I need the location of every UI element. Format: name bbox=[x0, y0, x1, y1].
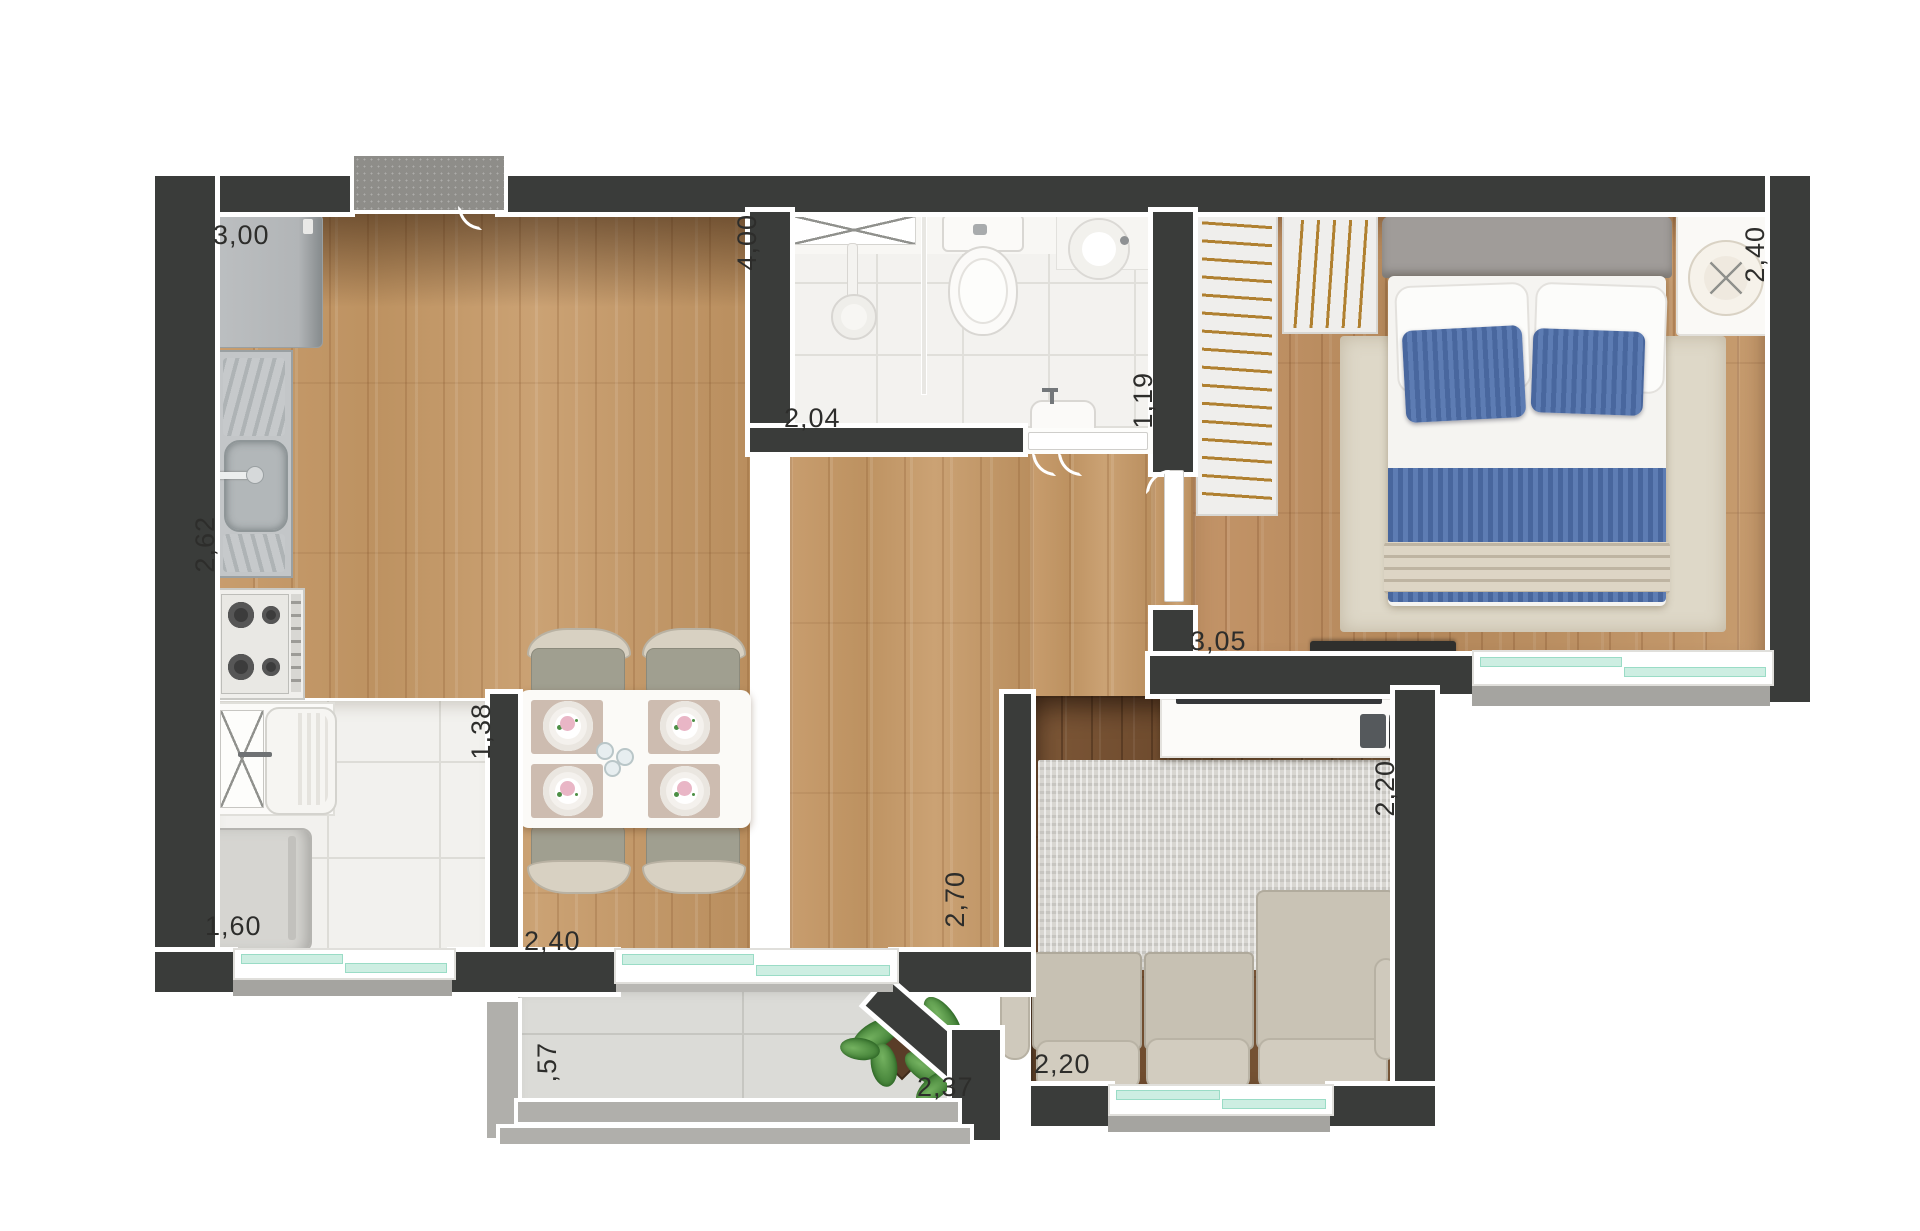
sink-drainboard-top bbox=[223, 358, 285, 436]
living-window-sill bbox=[1108, 1114, 1330, 1132]
wall-basin-faucet bbox=[1050, 390, 1054, 404]
sofa-seat-cushion-3 bbox=[1258, 1038, 1388, 1090]
bed-foot-blue bbox=[1388, 592, 1666, 602]
dim-kitchen-top: 3,00 bbox=[213, 220, 270, 251]
wall-top-main bbox=[500, 176, 1810, 212]
sofa-seat-cushion-2 bbox=[1146, 1038, 1250, 1090]
media-box bbox=[1360, 714, 1386, 748]
bathroom-door-leaf bbox=[1028, 432, 1148, 450]
dining-floor bbox=[790, 452, 1031, 952]
fridge-handle bbox=[303, 219, 313, 234]
laundry-window-glass-2 bbox=[345, 963, 447, 973]
flower-2 bbox=[677, 716, 692, 731]
glass-3 bbox=[604, 760, 621, 777]
dim-bedroom-width: 3,05 bbox=[1190, 626, 1247, 657]
laundry-tank-faucet bbox=[238, 752, 272, 757]
floor-plan: 3,00 4,00 2,04 1,19 2,40 2,62 3,05 1,38 … bbox=[0, 0, 1920, 1231]
washing-machine-panel bbox=[288, 836, 296, 940]
dim-laundry-width: 1,60 bbox=[205, 911, 262, 942]
wall-bottom-center bbox=[452, 952, 616, 992]
sofa-back-cushion-2 bbox=[1144, 952, 1254, 1050]
bedroom-window-sill bbox=[1472, 686, 1770, 706]
toilet-flush-button bbox=[973, 224, 987, 235]
shower-divider-glass bbox=[922, 214, 926, 394]
wall-bedroom-left-stub bbox=[1153, 610, 1193, 658]
bed-throw-beige bbox=[1384, 542, 1670, 594]
wall-living-left-divider bbox=[1004, 694, 1031, 952]
bedroom-window bbox=[1472, 650, 1774, 686]
glass-1 bbox=[596, 742, 614, 760]
laundry-window-glass-1 bbox=[241, 954, 343, 964]
balcony-left-parapet bbox=[487, 1002, 518, 1138]
laundry-tank-ribs bbox=[298, 713, 328, 805]
sink-drainboard-bottom bbox=[223, 534, 285, 572]
basin-faucet-dot bbox=[1120, 236, 1129, 245]
toilet-seat bbox=[958, 258, 1008, 324]
laundry-window-sill bbox=[233, 978, 452, 996]
laundry-counter-x bbox=[220, 710, 264, 808]
bedroom-tv bbox=[1310, 641, 1456, 657]
bed-headboard bbox=[1382, 216, 1672, 278]
wall-right-outer bbox=[1770, 176, 1810, 702]
stove-burner-4 bbox=[262, 658, 280, 676]
shower-glass-screen bbox=[792, 215, 916, 245]
balcony-bottom-parapet-outer bbox=[500, 1128, 970, 1144]
round-basin bbox=[1068, 218, 1130, 280]
dim-bedroom-nightstand: 2,40 bbox=[1740, 226, 1771, 283]
wall-basin-faucet-arm bbox=[1042, 388, 1058, 392]
stove-burner-3 bbox=[228, 654, 254, 680]
entry-doormat bbox=[350, 152, 508, 214]
wall-left-outer bbox=[155, 176, 215, 992]
stove-burner-1 bbox=[228, 602, 254, 628]
bed-accent-pillow-right bbox=[1531, 328, 1646, 416]
wall-living-right bbox=[1395, 690, 1435, 1126]
stove-controls bbox=[291, 594, 301, 692]
balcony-sliding-door bbox=[614, 948, 899, 984]
stove-burner-2 bbox=[262, 606, 280, 624]
dim-bathroom-width: 2,04 bbox=[784, 403, 841, 434]
shower-arm bbox=[847, 243, 858, 301]
dim-laundry-height: 1,38 bbox=[466, 703, 497, 760]
dim-living-height: 4,00 bbox=[732, 214, 763, 271]
flower-3 bbox=[560, 781, 575, 796]
bed-blanket-blue bbox=[1388, 468, 1666, 548]
sink-bowl bbox=[224, 440, 288, 532]
dim-bathroom-height: 1,19 bbox=[1128, 372, 1159, 429]
wall-bottom-right-of-slider bbox=[893, 952, 1031, 992]
dim-balcony-width: 2,37 bbox=[917, 1072, 974, 1103]
dining-chair-seat-1 bbox=[531, 648, 625, 696]
flower-1 bbox=[560, 716, 575, 731]
flower-4 bbox=[677, 781, 692, 796]
wardrobe-left-hangers bbox=[1202, 220, 1272, 510]
dim-dining-height: 2,70 bbox=[940, 871, 971, 928]
bed-accent-pillow-left bbox=[1402, 325, 1527, 423]
corridor-floor bbox=[1031, 452, 1153, 696]
dining-chair-seat-2 bbox=[646, 648, 740, 696]
sofa-back-cushion-1 bbox=[1032, 952, 1142, 1050]
laundry-window bbox=[233, 948, 456, 980]
dim-tv-wall-height: 2,20 bbox=[1370, 760, 1401, 817]
balcony-door-glass-2 bbox=[756, 965, 890, 976]
living-window-glass-2 bbox=[1222, 1099, 1326, 1109]
wall-living-bottom-right bbox=[1330, 1086, 1435, 1126]
dim-sofa-width: 2,20 bbox=[1034, 1049, 1091, 1080]
living-window-glass-1 bbox=[1116, 1090, 1220, 1100]
dim-balcony-height: ,57 bbox=[532, 1042, 563, 1083]
bedroom-window-glass-1 bbox=[1480, 657, 1622, 667]
wall-bedroom-bottom bbox=[1150, 656, 1472, 694]
balcony-bottom-parapet-inner bbox=[518, 1102, 958, 1122]
balcony-door-glass-1 bbox=[622, 954, 754, 965]
wall-living-bottom-left bbox=[1031, 1086, 1110, 1126]
wardrobe-top-hangers bbox=[1288, 220, 1372, 328]
dim-dining-width: 2,40 bbox=[524, 926, 581, 957]
living-room-window bbox=[1108, 1084, 1334, 1116]
sink-faucet-base bbox=[246, 466, 264, 484]
wall-bottom-laundry-left bbox=[155, 952, 233, 992]
bedroom-window-glass-2 bbox=[1624, 667, 1766, 677]
wall-bedroom-left bbox=[1153, 212, 1193, 472]
shower-head bbox=[831, 294, 877, 340]
dim-kitchen-counter: 2,62 bbox=[190, 516, 221, 573]
